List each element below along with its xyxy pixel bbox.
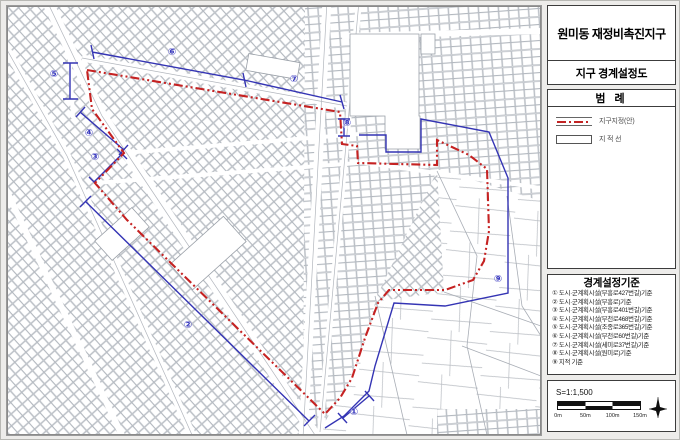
legend-body: 지구지정(안) 지 적 선 [548, 107, 675, 161]
district-map: ① ② ③ ④ ⑤ ⑥ ⑦ ⑧ ⑨ [6, 5, 542, 436]
criteria-item: ③ 도시·군계획시설(부흥로401번길)기준 [552, 307, 671, 316]
map-canvas [7, 6, 541, 435]
map-marker-3: ③ [91, 153, 99, 163]
scale-tick: 100m [606, 413, 620, 419]
compass-icon [647, 395, 669, 421]
map-marker-5: ⑤ [50, 70, 58, 80]
criteria-item: ⑨ 지적 기준 [552, 359, 671, 368]
criteria-item: ⑦ 도시·군계획시설(세미로37번길)기준 [552, 342, 671, 351]
legend-item-district: 지구지정(안) [556, 116, 667, 126]
criteria-list: ① 도시·군계획시설(부흥로427번길)기준 ② 도시·군계획시설(부흥로)기준… [548, 289, 675, 367]
criteria-item: ⑥ 도시·군계획시설(부천로60번길)기준 [552, 333, 671, 342]
map-marker-6: ⑥ [168, 48, 176, 58]
scale-tick: 50m [580, 413, 591, 419]
criteria-header: 경계설정기준 [548, 275, 675, 289]
cadastral-line-symbol [556, 135, 592, 144]
district-boundary-symbol [556, 117, 592, 126]
criteria-item: ② 도시·군계획시설(부흥로)기준 [552, 299, 671, 308]
title-box: 원미동 재정비촉진지구 지구 경계설정도 [547, 5, 676, 85]
map-marker-7: ⑦ [290, 75, 298, 85]
legend: 범 례 지구지정(안) 지 적 선 [547, 89, 676, 269]
legend-item-label: 지구지정(안) [599, 116, 634, 126]
criteria-item: ① 도시·군계획시설(부흥로427번길)기준 [552, 290, 671, 299]
scale-box: S=1:1,500 0m 50m 100m 150m [547, 380, 676, 432]
page-subtitle: 지구 경계설정도 [548, 61, 675, 85]
criteria-item: ⑤ 도시·군계획시설(조종로365번길)기준 [552, 324, 671, 333]
map-marker-8: ⑧ [343, 119, 351, 129]
scale-tick: 0m [554, 413, 562, 419]
scale-ratio: S=1:1,500 [556, 388, 593, 397]
map-marker-4: ④ [85, 129, 93, 139]
page-title: 원미동 재정비촉진지구 [548, 6, 675, 61]
legend-item-cadastral: 지 적 선 [556, 134, 667, 144]
map-marker-1: ① [350, 408, 358, 418]
map-marker-2: ② [184, 321, 192, 331]
map-marker-9: ⑨ [494, 275, 502, 285]
criteria-box: 경계설정기준 ① 도시·군계획시설(부흥로427번길)기준 ② 도시·군계획시설… [547, 274, 676, 375]
side-panel: 원미동 재정비촉진지구 지구 경계설정도 범 례 지구지정(안) 지 적 선 경… [547, 1, 677, 440]
legend-header: 범 례 [548, 90, 675, 107]
page: ① ② ③ ④ ⑤ ⑥ ⑦ ⑧ ⑨ 원미동 재정비촉진지구 지구 경계설정도 범… [0, 0, 680, 440]
legend-item-label: 지 적 선 [599, 134, 621, 144]
criteria-item: ⑧ 도시·군계획시설(원미로)기준 [552, 350, 671, 359]
scale-bar: 0m 50m 100m 150m [557, 401, 641, 410]
scale-tick: 150m [633, 413, 647, 419]
